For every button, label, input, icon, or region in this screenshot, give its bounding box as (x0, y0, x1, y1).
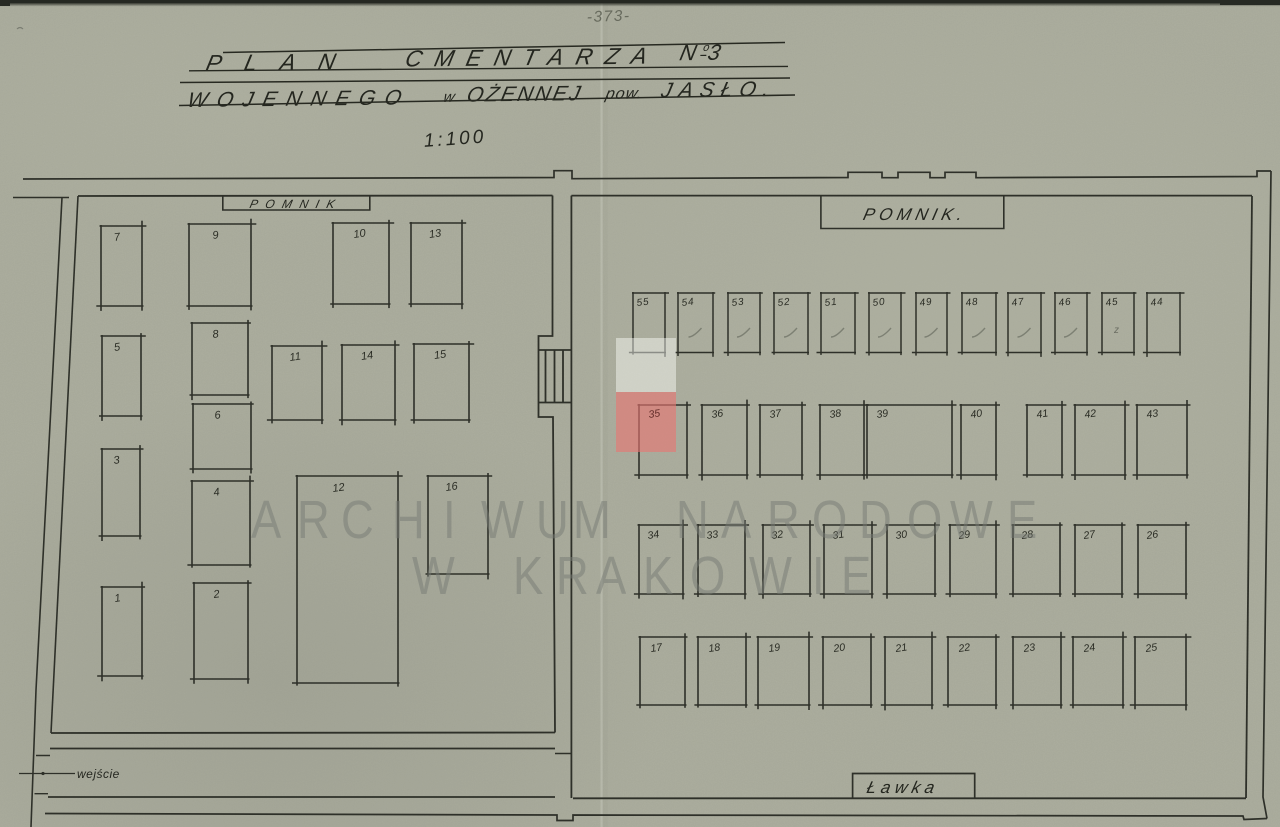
svg-text:PLAN: PLAN (204, 48, 362, 76)
svg-text:25: 25 (1144, 641, 1158, 655)
svg-text:wejście: wejście (77, 767, 120, 781)
svg-text:38: 38 (829, 407, 842, 421)
svg-text:A: A (251, 489, 282, 550)
svg-text:N: N (676, 489, 709, 550)
svg-text:A: A (596, 545, 627, 606)
svg-text:41: 41 (1036, 407, 1049, 421)
svg-text:A: A (721, 489, 752, 550)
svg-text:Ławka: Ławka (865, 777, 941, 797)
svg-text:52: 52 (777, 297, 791, 309)
svg-text:I: I (812, 545, 825, 606)
svg-text:47: 47 (1011, 297, 1025, 309)
svg-text:pow.: pow. (603, 85, 645, 103)
svg-text:14: 14 (360, 349, 374, 363)
svg-text:34: 34 (647, 528, 660, 542)
svg-text:WOJENNEGO: WOJENNEGO (185, 85, 413, 111)
svg-text:24: 24 (1082, 641, 1096, 655)
svg-text:E: E (841, 545, 871, 606)
svg-text:39: 39 (876, 407, 889, 421)
svg-text:51: 51 (824, 297, 838, 309)
svg-text:53: 53 (731, 297, 745, 309)
svg-text:D: D (859, 489, 892, 550)
svg-text:W: W (950, 489, 993, 550)
svg-text:H: H (392, 489, 425, 550)
svg-text:W: W (481, 489, 524, 550)
svg-text:30: 30 (895, 528, 908, 542)
svg-text:20: 20 (832, 641, 846, 655)
svg-text:26: 26 (1145, 528, 1159, 542)
svg-text:R: R (767, 489, 800, 550)
svg-text:M: M (573, 489, 611, 550)
svg-text:36: 36 (711, 407, 724, 421)
svg-text:42: 42 (1084, 407, 1097, 421)
svg-text:11: 11 (289, 350, 302, 363)
svg-text:R: R (556, 545, 589, 606)
svg-text:POMNIK.: POMNIK. (861, 204, 969, 224)
svg-text:22: 22 (957, 641, 971, 655)
svg-text:O: O (690, 545, 725, 606)
svg-text:19: 19 (768, 641, 781, 655)
svg-text:O: O (812, 489, 847, 550)
svg-text:54: 54 (681, 297, 695, 309)
svg-text:POMNIK: POMNIK (248, 197, 343, 211)
svg-text:35: 35 (648, 407, 661, 421)
svg-text:49: 49 (919, 297, 933, 309)
svg-text:1:100: 1:100 (423, 127, 487, 152)
svg-text:44: 44 (1150, 297, 1164, 309)
svg-text:OŻENNEJ: OŻENNEJ (465, 81, 586, 106)
svg-text:R: R (297, 489, 330, 550)
svg-text:55: 55 (636, 297, 650, 309)
svg-text:U: U (536, 489, 569, 550)
svg-text:23: 23 (1022, 641, 1036, 655)
svg-text:C: C (341, 489, 374, 550)
svg-text:JASŁO.: JASŁO. (658, 77, 778, 102)
svg-text:21: 21 (894, 641, 908, 655)
svg-text:46: 46 (1058, 297, 1072, 309)
svg-text:I: I (443, 489, 456, 550)
svg-text:O: O (907, 489, 942, 550)
svg-text:-373-: -373- (587, 7, 631, 26)
svg-text:K: K (513, 545, 543, 606)
svg-text:W: W (412, 545, 455, 606)
svg-text:40: 40 (970, 407, 983, 421)
svg-text:43: 43 (1146, 407, 1159, 421)
svg-text:z: z (1113, 325, 1119, 336)
svg-text:E: E (1007, 489, 1037, 550)
svg-text:50: 50 (872, 297, 886, 309)
svg-text:45: 45 (1105, 297, 1119, 309)
svg-text:W: W (749, 545, 792, 606)
svg-text:48: 48 (965, 297, 979, 309)
svg-text:18: 18 (708, 641, 721, 655)
svg-text:K: K (643, 545, 673, 606)
